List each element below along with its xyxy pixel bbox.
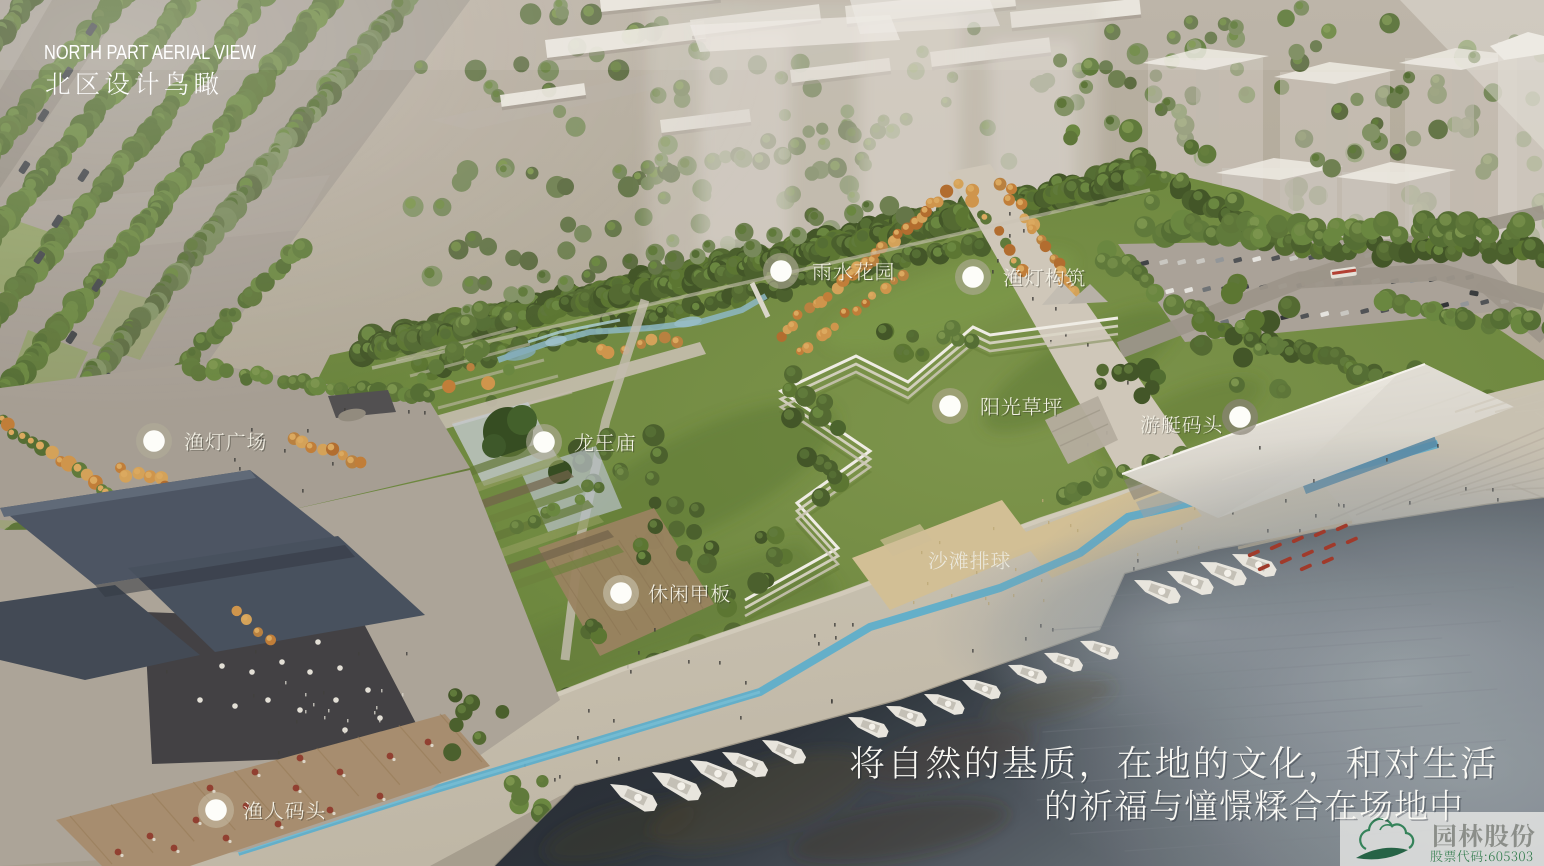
svg-text:NORTH PART AERIAL VIEW: NORTH PART AERIAL VIEW bbox=[44, 41, 257, 64]
